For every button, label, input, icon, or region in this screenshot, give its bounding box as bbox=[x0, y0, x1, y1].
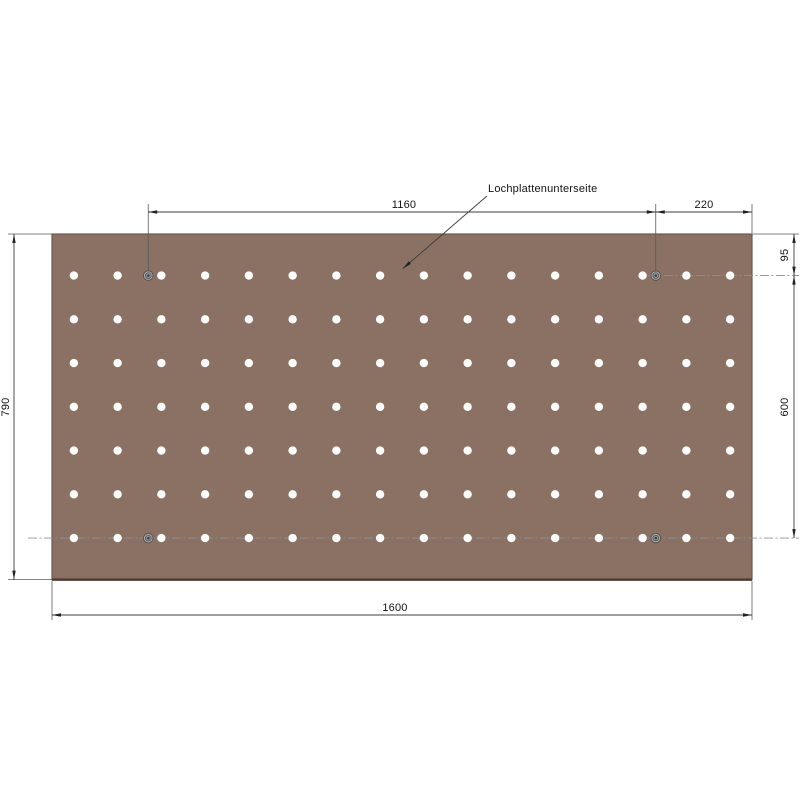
grid-hole bbox=[682, 359, 690, 367]
grid-hole bbox=[113, 315, 121, 323]
grid-hole bbox=[595, 403, 603, 411]
grid-hole bbox=[70, 446, 78, 454]
grid-hole bbox=[551, 403, 559, 411]
grid-hole bbox=[376, 271, 384, 279]
grid-hole bbox=[288, 359, 296, 367]
grid-hole bbox=[638, 490, 646, 498]
grid-hole bbox=[376, 359, 384, 367]
grid-hole bbox=[201, 359, 209, 367]
technical-drawing: 1160 220 95 600 790 1600 Lochplattenunte… bbox=[0, 0, 800, 800]
screw-hole-symbol bbox=[143, 533, 153, 543]
grid-hole bbox=[113, 534, 121, 542]
grid-hole bbox=[638, 534, 646, 542]
grid-hole bbox=[551, 446, 559, 454]
grid-hole bbox=[70, 490, 78, 498]
grid-hole bbox=[70, 359, 78, 367]
grid-hole bbox=[245, 271, 253, 279]
screw-center-dot bbox=[147, 274, 150, 277]
grid-hole bbox=[245, 315, 253, 323]
grid-hole bbox=[463, 315, 471, 323]
grid-hole bbox=[507, 403, 515, 411]
grid-hole bbox=[420, 446, 428, 454]
screw-hole-symbol bbox=[143, 271, 153, 281]
grid-hole bbox=[551, 534, 559, 542]
grid-hole bbox=[726, 359, 734, 367]
grid-hole bbox=[463, 446, 471, 454]
grid-hole bbox=[726, 446, 734, 454]
grid-hole bbox=[420, 271, 428, 279]
grid-hole bbox=[420, 315, 428, 323]
grid-hole bbox=[682, 534, 690, 542]
grid-hole bbox=[201, 271, 209, 279]
grid-hole bbox=[201, 315, 209, 323]
grid-hole bbox=[376, 534, 384, 542]
grid-hole bbox=[245, 490, 253, 498]
plate bbox=[52, 234, 752, 580]
grid-hole bbox=[507, 271, 515, 279]
grid-hole bbox=[638, 271, 646, 279]
grid-hole bbox=[595, 271, 603, 279]
grid-hole bbox=[245, 446, 253, 454]
grid-hole bbox=[113, 271, 121, 279]
grid-hole bbox=[595, 315, 603, 323]
grid-hole bbox=[113, 446, 121, 454]
grid-hole bbox=[682, 490, 690, 498]
grid-hole bbox=[332, 271, 340, 279]
grid-hole bbox=[332, 403, 340, 411]
grid-hole bbox=[638, 403, 646, 411]
grid-hole bbox=[726, 315, 734, 323]
grid-hole bbox=[157, 490, 165, 498]
grid-hole bbox=[201, 403, 209, 411]
grid-hole bbox=[682, 403, 690, 411]
grid-hole bbox=[682, 271, 690, 279]
grid-hole bbox=[288, 490, 296, 498]
grid-hole bbox=[595, 446, 603, 454]
dim-label-220: 220 bbox=[695, 199, 714, 211]
dim-label-600: 600 bbox=[779, 398, 791, 417]
grid-hole bbox=[157, 315, 165, 323]
grid-hole bbox=[551, 315, 559, 323]
grid-hole bbox=[332, 534, 340, 542]
grid-hole bbox=[245, 534, 253, 542]
screw-center-dot bbox=[655, 537, 658, 540]
grid-hole bbox=[420, 403, 428, 411]
grid-hole bbox=[551, 490, 559, 498]
grid-hole bbox=[70, 315, 78, 323]
grid-hole bbox=[682, 315, 690, 323]
callout-label: Lochplattenunterseite bbox=[488, 183, 597, 195]
screw-center-dot bbox=[147, 537, 150, 540]
grid-hole bbox=[70, 271, 78, 279]
grid-hole bbox=[288, 446, 296, 454]
dim-label-1600: 1600 bbox=[382, 602, 407, 614]
grid-hole bbox=[507, 315, 515, 323]
plate-layer bbox=[52, 234, 752, 580]
dim-label-95: 95 bbox=[779, 249, 791, 262]
grid-hole bbox=[157, 534, 165, 542]
grid-hole bbox=[463, 271, 471, 279]
grid-hole bbox=[157, 403, 165, 411]
grid-hole bbox=[376, 446, 384, 454]
grid-hole bbox=[376, 403, 384, 411]
grid-hole bbox=[288, 534, 296, 542]
grid-hole bbox=[332, 315, 340, 323]
grid-hole bbox=[420, 534, 428, 542]
grid-hole bbox=[201, 534, 209, 542]
screw-hole-symbol bbox=[651, 271, 661, 281]
grid-hole bbox=[157, 271, 165, 279]
grid-hole bbox=[726, 403, 734, 411]
grid-hole bbox=[463, 359, 471, 367]
grid-hole bbox=[332, 446, 340, 454]
grid-hole bbox=[726, 534, 734, 542]
dim-label-1160: 1160 bbox=[392, 199, 416, 211]
grid-hole bbox=[551, 359, 559, 367]
grid-hole bbox=[113, 403, 121, 411]
drawing-canvas: 1160 220 95 600 790 1600 Lochplattenunte… bbox=[0, 0, 800, 800]
grid-hole bbox=[507, 534, 515, 542]
grid-hole bbox=[463, 403, 471, 411]
grid-hole bbox=[726, 271, 734, 279]
grid-hole bbox=[507, 490, 515, 498]
grid-hole bbox=[70, 403, 78, 411]
grid-hole bbox=[376, 490, 384, 498]
screw-hole-symbol bbox=[651, 533, 661, 543]
grid-hole bbox=[376, 315, 384, 323]
grid-hole bbox=[595, 534, 603, 542]
screw-center-dot bbox=[655, 274, 658, 277]
grid-hole bbox=[288, 271, 296, 279]
grid-hole bbox=[157, 446, 165, 454]
grid-hole bbox=[638, 359, 646, 367]
grid-hole bbox=[638, 446, 646, 454]
grid-hole bbox=[463, 490, 471, 498]
grid-hole bbox=[157, 359, 165, 367]
grid-hole bbox=[113, 359, 121, 367]
grid-hole bbox=[288, 403, 296, 411]
grid-hole bbox=[420, 490, 428, 498]
grid-hole bbox=[420, 359, 428, 367]
grid-hole bbox=[638, 315, 646, 323]
grid-hole bbox=[332, 490, 340, 498]
grid-hole bbox=[201, 446, 209, 454]
grid-hole bbox=[595, 490, 603, 498]
grid-hole bbox=[507, 446, 515, 454]
grid-hole bbox=[595, 359, 603, 367]
grid-hole bbox=[507, 359, 515, 367]
grid-hole bbox=[70, 534, 78, 542]
grid-hole bbox=[113, 490, 121, 498]
grid-hole bbox=[463, 534, 471, 542]
grid-hole bbox=[682, 446, 690, 454]
grid-hole bbox=[288, 315, 296, 323]
grid-hole bbox=[726, 490, 734, 498]
grid-hole bbox=[245, 359, 253, 367]
grid-hole bbox=[245, 403, 253, 411]
dim-label-790: 790 bbox=[0, 398, 12, 417]
grid-hole bbox=[332, 359, 340, 367]
grid-hole bbox=[551, 271, 559, 279]
grid-hole bbox=[201, 490, 209, 498]
